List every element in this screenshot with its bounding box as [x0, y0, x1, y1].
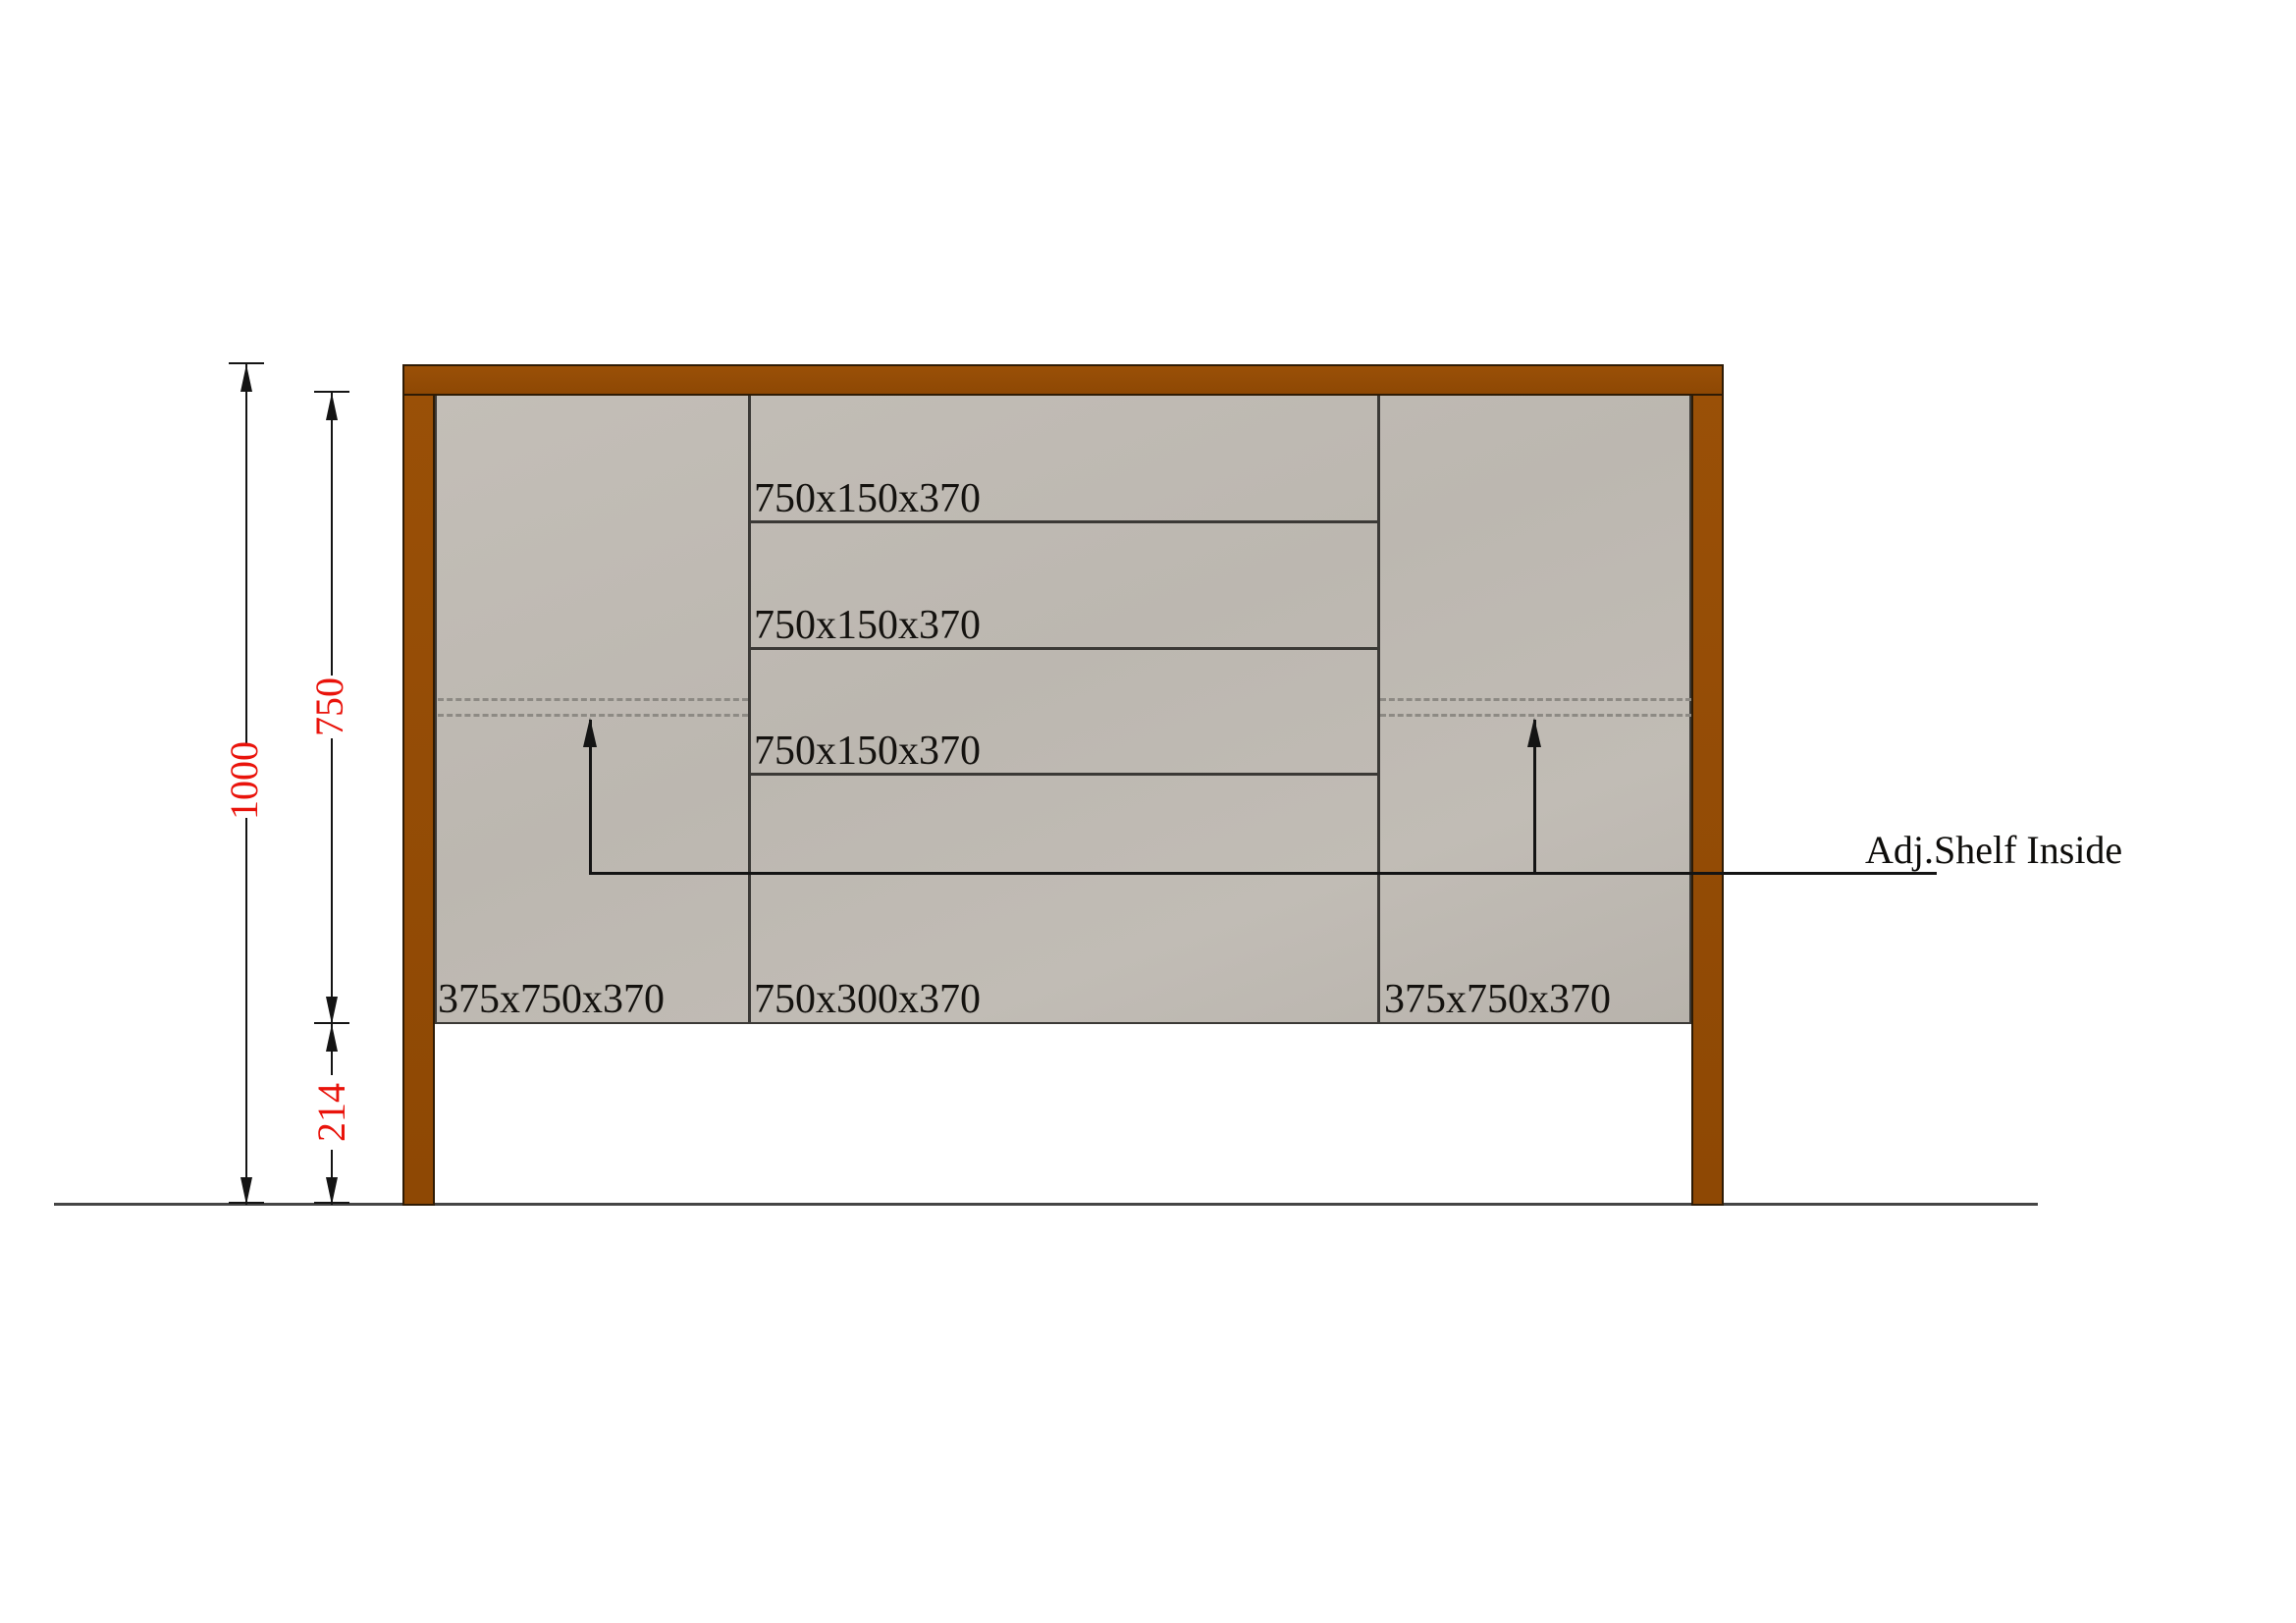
cabinet-interior-panel: [435, 394, 1691, 1024]
shelf-leader-arrow-left: [583, 718, 597, 747]
interior-partition-left: [748, 396, 751, 1024]
shelf-leader-horizontal: [589, 872, 1937, 875]
drawer-label-1: 750x150x370: [754, 478, 981, 519]
overall-height-dim-arrow-bottom: [240, 1177, 252, 1205]
cabinet-right-leg: [1691, 364, 1724, 1206]
overall-height-dim-label: 1000: [225, 702, 268, 859]
cabinet-top-rail: [402, 364, 1724, 396]
bottom-center-label: 750x300x370: [754, 979, 981, 1020]
overall-height-dim-tick-bottom: [229, 1202, 264, 1204]
interior-partition-right: [1377, 396, 1380, 1024]
carcase-height-dim-arrow-top: [326, 393, 338, 420]
carcase-height-dim-label: 750: [310, 628, 353, 785]
drawer-label-3: 750x150x370: [754, 730, 981, 772]
carcase-height-dim-arrow-bottom: [326, 997, 338, 1024]
overall-height-dim-line-upper: [245, 364, 247, 743]
adjustable-shelf-dashed-line-right-lower: [1380, 714, 1691, 717]
adjustable-shelf-dashed-line-right-upper: [1380, 698, 1691, 701]
leg-height-dim-label: 214: [312, 1034, 355, 1191]
overall-height-dim-line-lower: [245, 818, 247, 1205]
furniture-elevation-drawing: 750x150x370 750x150x370 750x150x370 375x…: [0, 0, 2296, 1623]
shelf-leader-arrow-right: [1527, 718, 1541, 747]
carcase-height-dim-tick-top: [314, 391, 349, 393]
left-door-label: 375x750x370: [438, 979, 665, 1020]
adjustable-shelf-dashed-line-left-upper: [438, 698, 748, 701]
overall-height-dim-tick-top: [229, 362, 264, 364]
adjustable-shelf-dashed-line-left-lower: [438, 714, 748, 717]
overall-height-dim-arrow-top: [240, 364, 252, 392]
drawer-label-2: 750x150x370: [754, 605, 981, 646]
shelf-annotation-label: Adj.Shelf Inside: [1865, 831, 2122, 870]
cabinet-left-leg: [402, 364, 435, 1206]
leg-height-dim-tick-bottom: [314, 1202, 349, 1204]
ground-line: [54, 1203, 2038, 1206]
right-door-label: 375x750x370: [1384, 979, 1611, 1020]
